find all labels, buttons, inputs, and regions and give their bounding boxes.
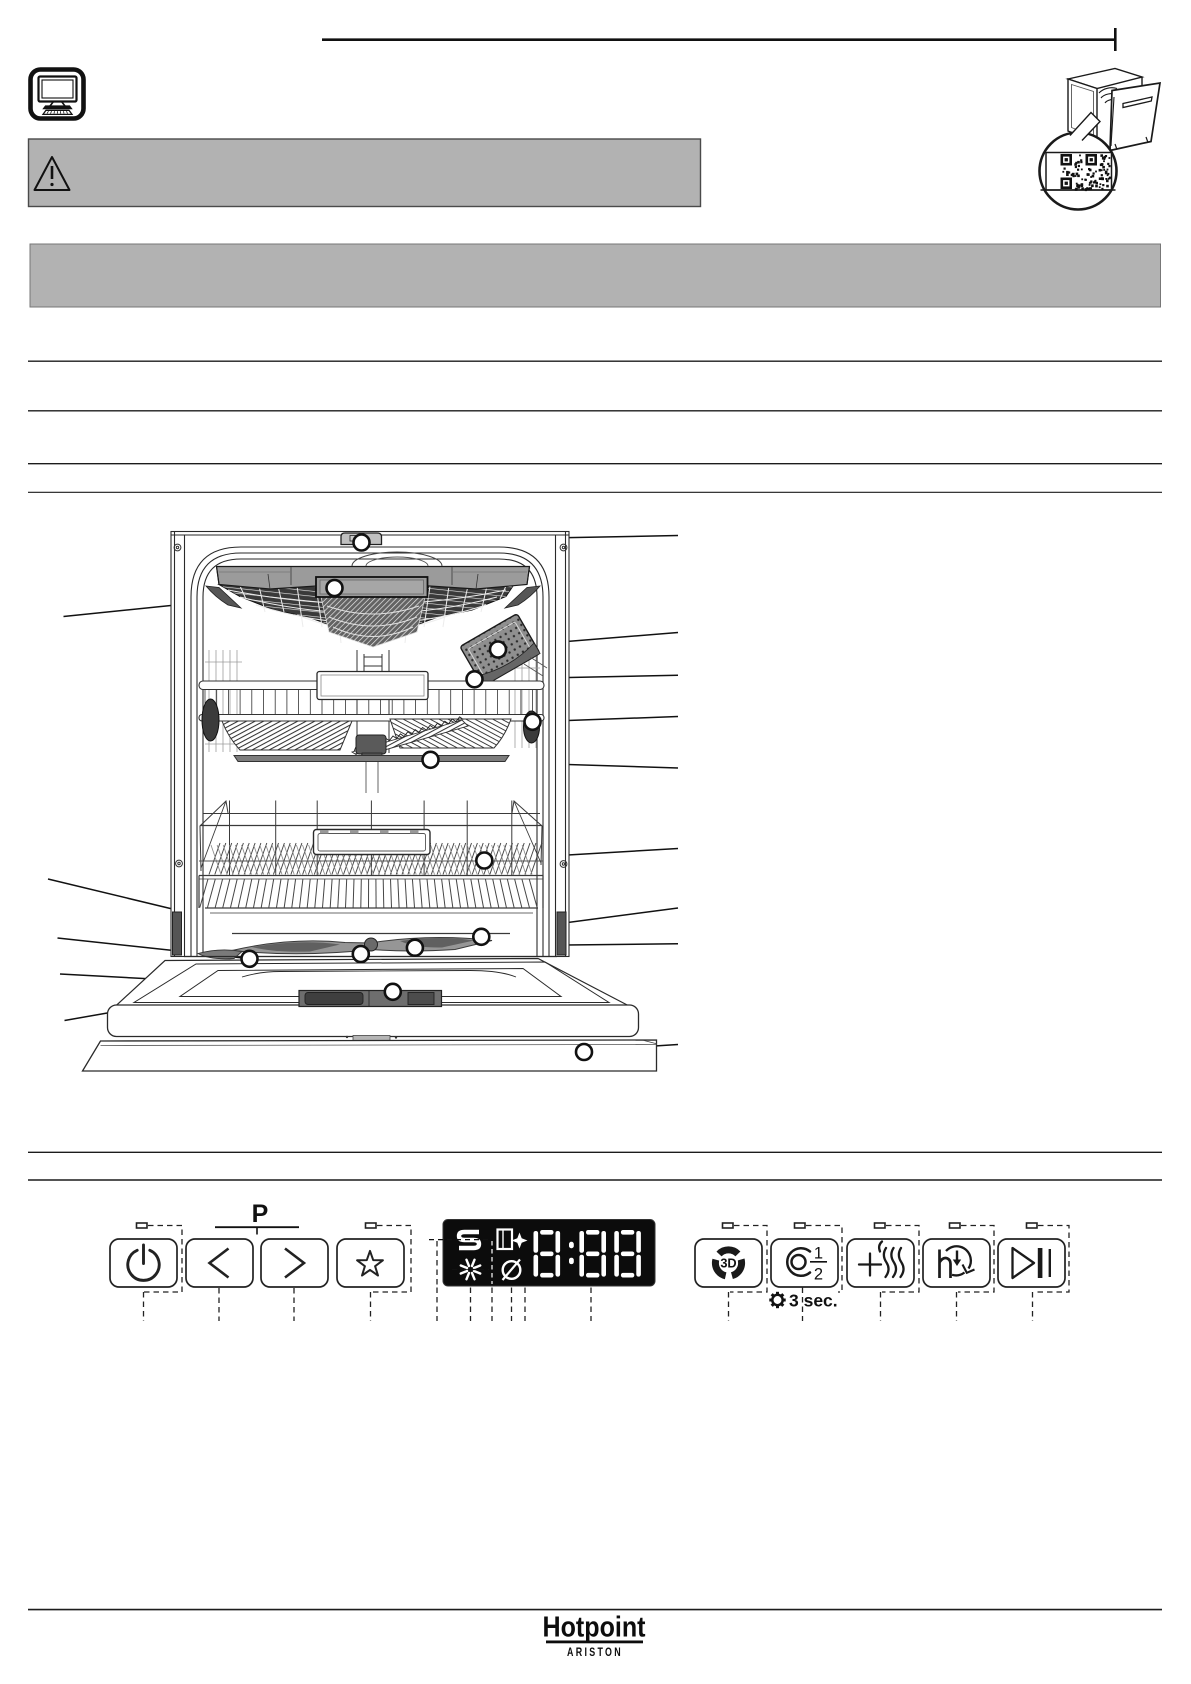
svg-text:1: 1 bbox=[814, 1245, 823, 1263]
svg-text:ARISTON: ARISTON bbox=[567, 1647, 623, 1659]
svg-text:P: P bbox=[252, 1200, 269, 1228]
svg-text:Hotpoint: Hotpoint bbox=[543, 1612, 646, 1644]
svg-text:3D: 3D bbox=[720, 1256, 736, 1271]
svg-text:2: 2 bbox=[814, 1266, 823, 1284]
svg-text:3 sec.: 3 sec. bbox=[789, 1291, 838, 1311]
